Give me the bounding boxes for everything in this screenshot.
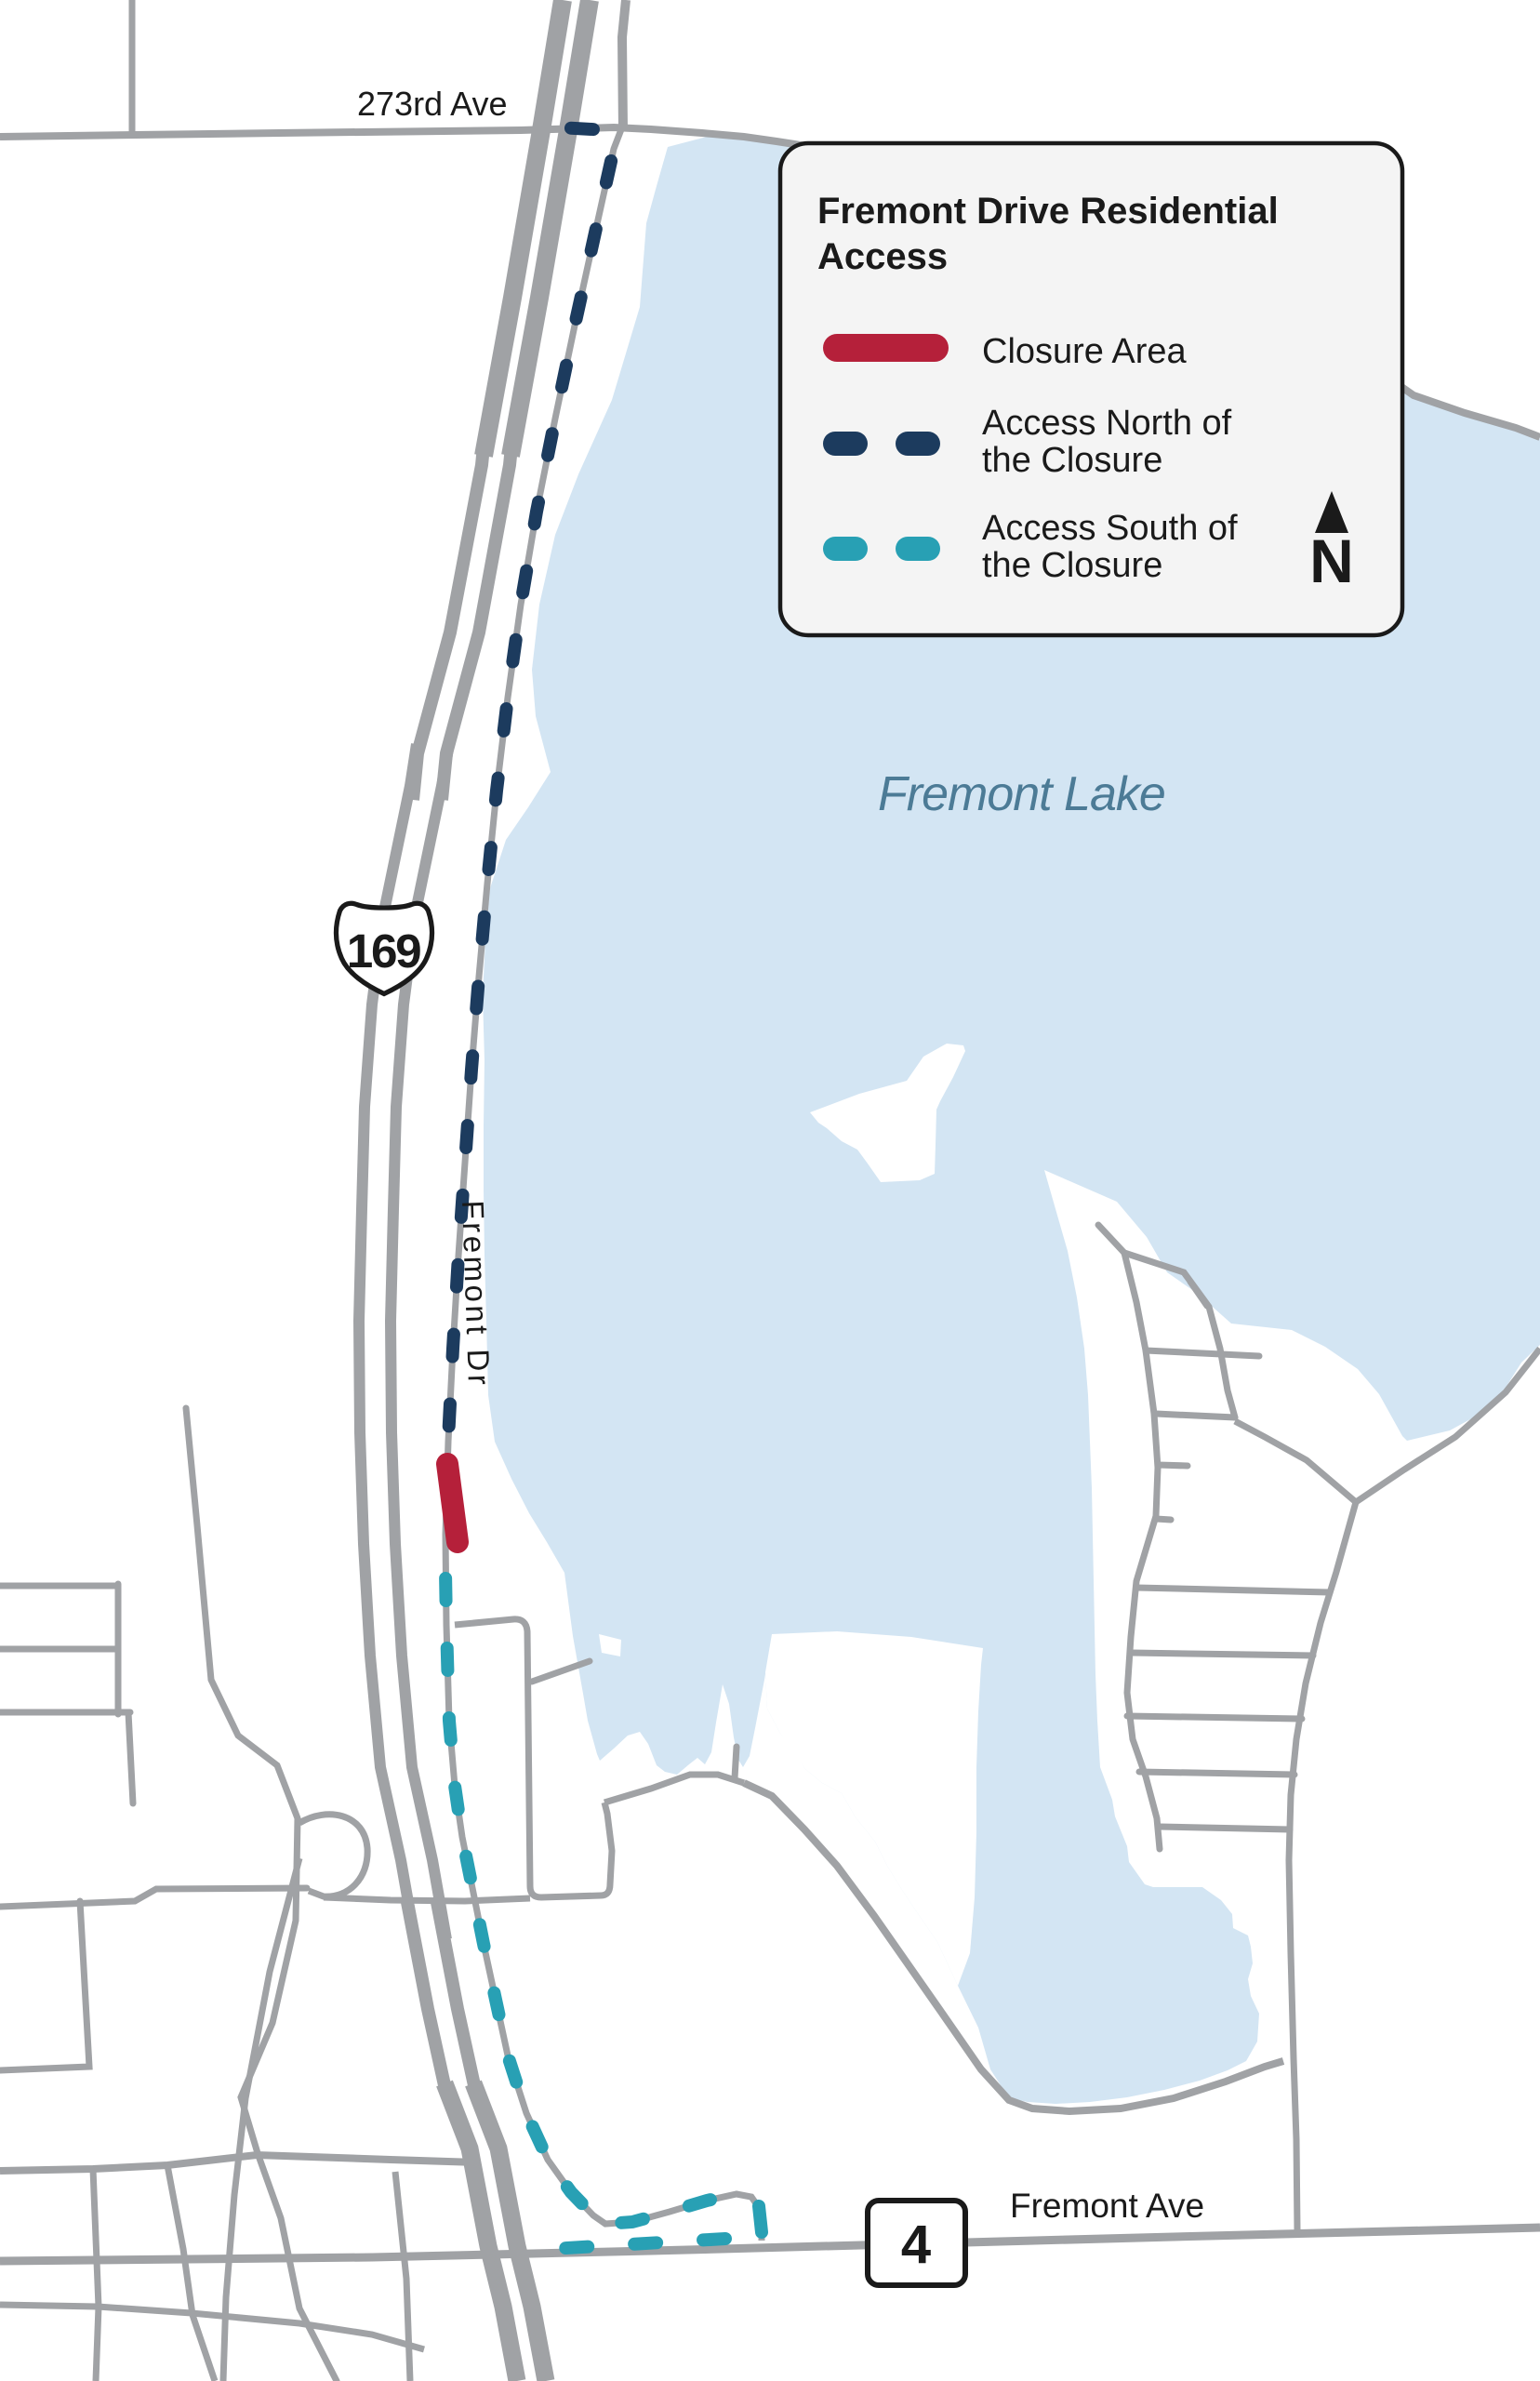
svg-text:Fremont Ave: Fremont Ave (1010, 2187, 1204, 2225)
svg-text:Fremont Drive Residential: Fremont Drive Residential (817, 191, 1279, 232)
svg-text:4: 4 (901, 2215, 931, 2275)
svg-text:Fremont Dr: Fremont Dr (456, 1200, 497, 1389)
svg-text:N: N (1309, 526, 1354, 595)
svg-text:Access South of: Access South of (982, 509, 1238, 548)
svg-text:the Closure: the Closure (982, 441, 1162, 480)
svg-text:273rd Ave: 273rd Ave (357, 85, 507, 123)
svg-text:Closure Area: Closure Area (982, 332, 1188, 371)
svg-text:Fremont Lake: Fremont Lake (878, 767, 1165, 821)
svg-text:the Closure: the Closure (982, 546, 1162, 585)
svg-text:Access: Access (817, 236, 948, 277)
svg-text:Access North of: Access North of (982, 404, 1232, 443)
svg-text:169: 169 (347, 924, 420, 978)
